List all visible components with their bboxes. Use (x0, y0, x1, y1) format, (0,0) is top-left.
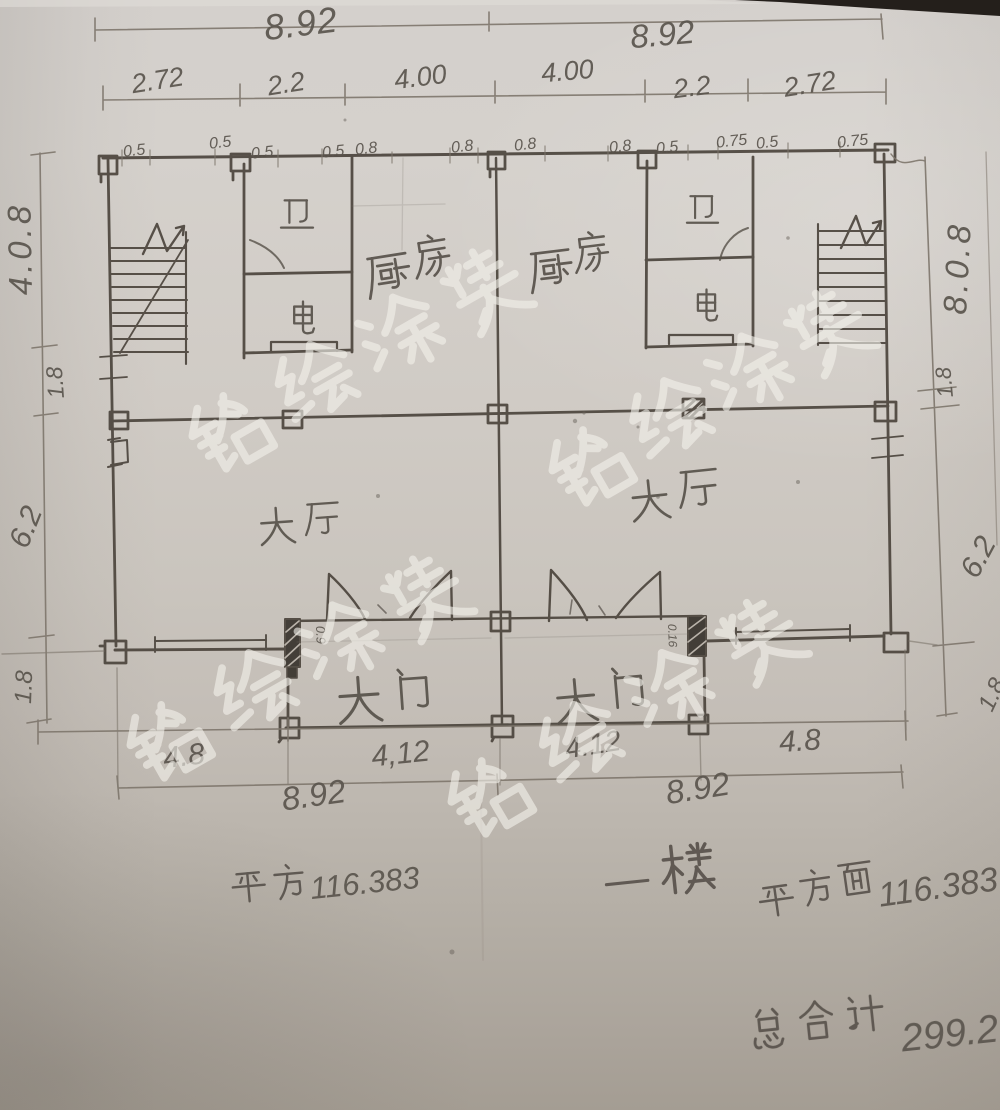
svg-text:299.2: 299.2 (898, 1007, 1000, 1060)
svg-text:0.5: 0.5 (755, 133, 779, 152)
svg-text:0.75: 0.75 (715, 132, 748, 152)
svg-text:2.72: 2.72 (781, 65, 839, 103)
svg-text:0.75: 0.75 (836, 132, 869, 152)
svg-text:0.16: 0.16 (665, 624, 680, 648)
svg-text:6.2: 6.2 (954, 531, 1000, 584)
svg-text:0.8: 0.8 (354, 139, 378, 158)
svg-text:4.8: 4.8 (778, 723, 822, 759)
svg-text:116.383: 116.383 (308, 860, 421, 906)
svg-text:4.00: 4.00 (392, 59, 448, 95)
svg-text:1.8: 1.8 (41, 366, 69, 400)
svg-text:2.2: 2.2 (670, 70, 712, 104)
svg-text:0.5: 0.5 (208, 133, 232, 152)
svg-text:8.0.8: 8.0.8 (936, 220, 978, 315)
svg-text:2.2: 2.2 (264, 66, 307, 102)
svg-text:0.8: 0.8 (608, 137, 632, 156)
svg-text:0.5: 0.5 (321, 142, 345, 161)
svg-text:116.383: 116.383 (876, 860, 1000, 914)
svg-text:1.8: 1.8 (10, 669, 38, 704)
svg-text:8.92: 8.92 (279, 772, 348, 818)
svg-text:8.92: 8.92 (663, 765, 732, 812)
svg-text:0.8: 0.8 (513, 135, 537, 154)
svg-text:1.8: 1.8 (973, 673, 1000, 715)
svg-text:0.8: 0.8 (450, 137, 474, 156)
svg-text:4.0.8: 4.0.8 (0, 201, 39, 295)
svg-text:6.2: 6.2 (3, 501, 49, 552)
svg-text:8.92: 8.92 (262, 0, 341, 48)
svg-text:2.72: 2.72 (128, 61, 186, 99)
svg-text:8.92: 8.92 (629, 13, 696, 55)
svg-text:1.8: 1.8 (930, 365, 958, 398)
svg-text:0.5: 0.5 (655, 138, 679, 157)
svg-text:4,12: 4,12 (370, 734, 432, 773)
svg-text:4.00: 4.00 (540, 54, 595, 88)
svg-text:0.5: 0.5 (250, 143, 274, 162)
svg-text:0.5: 0.5 (122, 141, 146, 160)
